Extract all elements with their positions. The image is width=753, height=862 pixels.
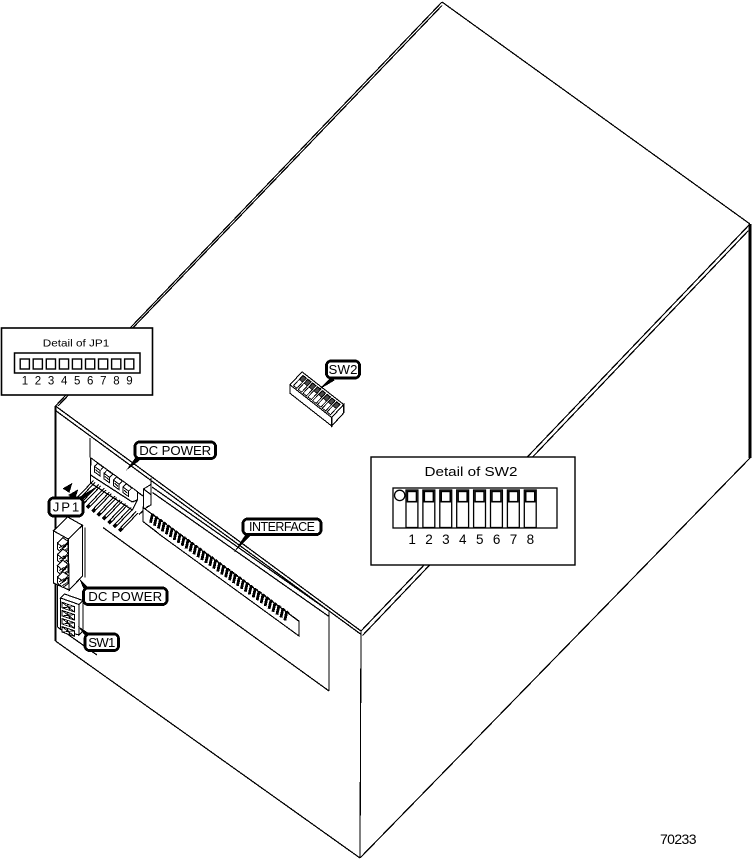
svg-text:6: 6 — [87, 376, 93, 388]
svg-text:8: 8 — [113, 376, 119, 388]
svg-text:DC POWER: DC POWER — [139, 443, 211, 458]
svg-text:Detail of SW2: Detail of SW2 — [425, 464, 518, 479]
svg-text:3: 3 — [442, 532, 450, 547]
svg-text:7: 7 — [510, 532, 518, 547]
svg-text:6: 6 — [493, 532, 501, 547]
svg-text:INTERFACE: INTERFACE — [249, 520, 315, 534]
svg-text:8: 8 — [527, 532, 535, 547]
svg-text:SW2: SW2 — [329, 362, 358, 377]
svg-text:9: 9 — [126, 376, 132, 388]
svg-text:7: 7 — [100, 376, 106, 388]
svg-text:5: 5 — [476, 532, 484, 547]
svg-text:70233: 70233 — [660, 831, 697, 847]
svg-text:4: 4 — [61, 376, 68, 388]
svg-text:4: 4 — [459, 532, 467, 547]
svg-text:3: 3 — [48, 376, 54, 388]
svg-text:DC POWER: DC POWER — [88, 589, 162, 604]
svg-text:2: 2 — [425, 532, 433, 547]
svg-text:5: 5 — [74, 376, 80, 388]
svg-text:SW1: SW1 — [88, 635, 115, 650]
svg-text:1: 1 — [408, 532, 416, 547]
svg-text:1: 1 — [22, 376, 28, 388]
svg-text:2: 2 — [35, 376, 41, 388]
svg-text:JP1: JP1 — [53, 500, 80, 515]
svg-text:Detail of JP1: Detail of JP1 — [43, 338, 110, 350]
